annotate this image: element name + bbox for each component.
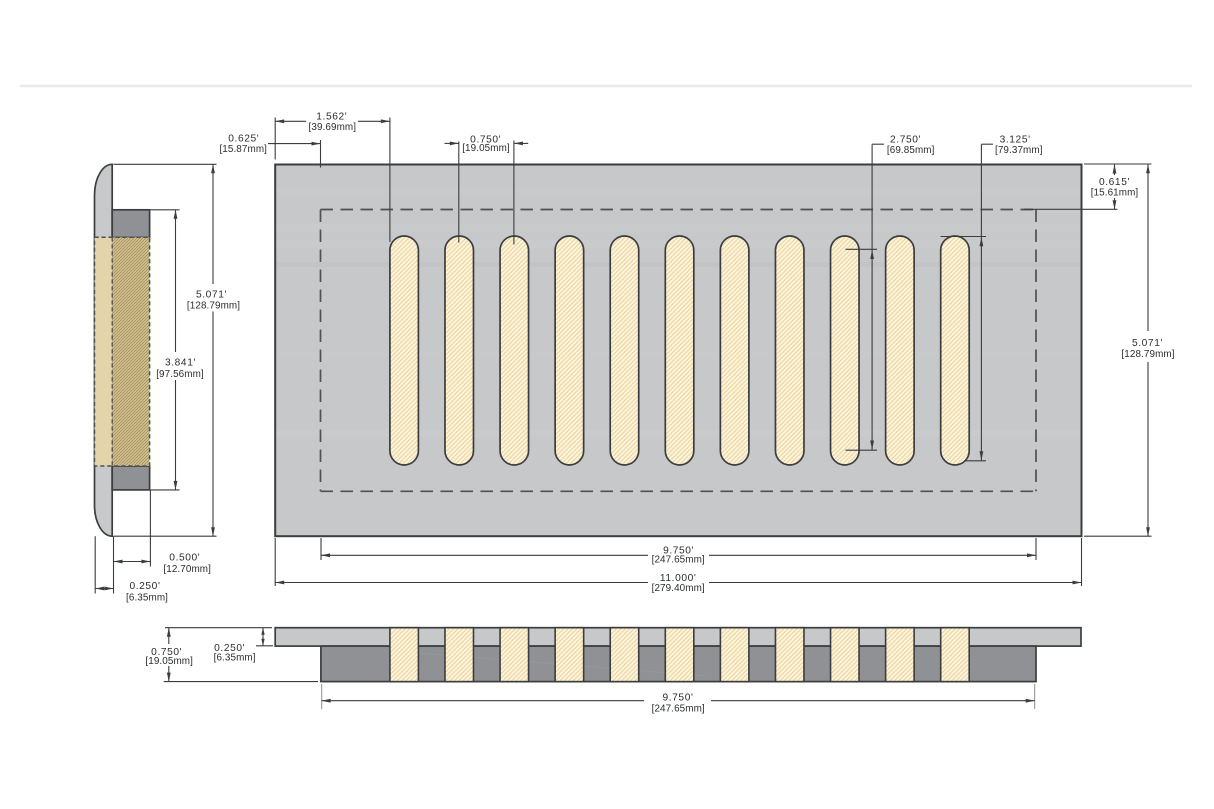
- svg-text:[19.05mm]: [19.05mm]: [462, 143, 510, 154]
- svg-text:[97.56mm]: [97.56mm]: [156, 369, 204, 380]
- svg-text:[6.35mm]: [6.35mm]: [126, 592, 168, 603]
- svg-text:[247.65mm]: [247.65mm]: [652, 703, 705, 714]
- svg-text:[128.79mm]: [128.79mm]: [1121, 349, 1174, 360]
- svg-text:0.500': 0.500': [169, 553, 200, 564]
- svg-text:[39.69mm]: [39.69mm]: [309, 122, 357, 133]
- svg-text:3.841': 3.841': [165, 357, 196, 368]
- svg-text:[79.37mm]: [79.37mm]: [995, 145, 1043, 156]
- svg-text:[6.35mm]: [6.35mm]: [214, 653, 256, 664]
- svg-text:[247.65mm]: [247.65mm]: [652, 555, 705, 566]
- svg-text:[15.61mm]: [15.61mm]: [1091, 187, 1139, 198]
- svg-text:[279.40mm]: [279.40mm]: [652, 583, 705, 594]
- svg-text:[69.85mm]: [69.85mm]: [887, 145, 935, 156]
- svg-text:[19.05mm]: [19.05mm]: [145, 656, 193, 667]
- svg-text:0.625': 0.625': [228, 134, 259, 145]
- svg-text:[15.87mm]: [15.87mm]: [219, 144, 267, 155]
- svg-text:9.750': 9.750': [662, 692, 693, 703]
- svg-text:1.562': 1.562': [316, 112, 347, 123]
- svg-text:[12.70mm]: [12.70mm]: [163, 564, 211, 575]
- svg-text:[128.79mm]: [128.79mm]: [187, 300, 240, 311]
- svg-text:0.250': 0.250': [129, 581, 160, 592]
- svg-text:5.071': 5.071': [196, 290, 227, 301]
- svg-text:5.071': 5.071': [1132, 338, 1163, 349]
